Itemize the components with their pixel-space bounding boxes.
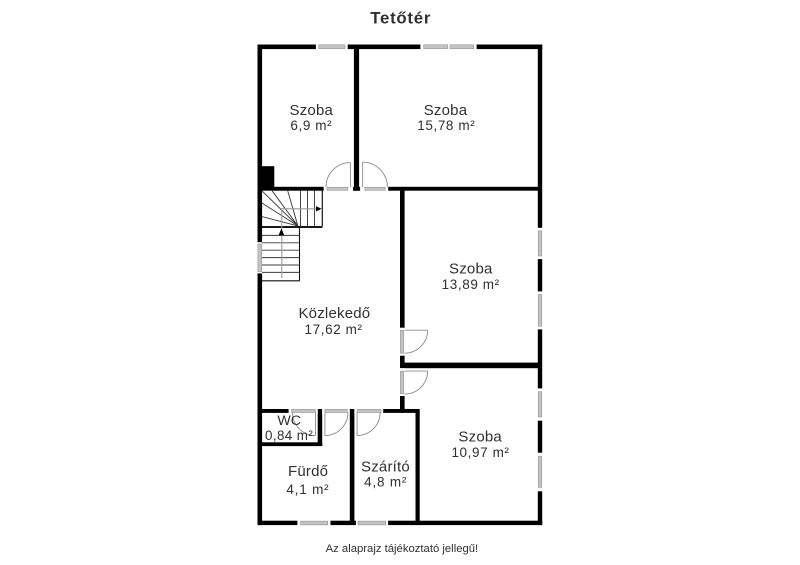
svg-text:Szoba: Szoba <box>290 102 334 119</box>
svg-text:6,9 m²: 6,9 m² <box>290 118 332 133</box>
svg-text:Szoba: Szoba <box>449 261 493 278</box>
svg-text:17,62 m²: 17,62 m² <box>305 322 363 337</box>
svg-text:10,97 m²: 10,97 m² <box>451 445 509 460</box>
svg-text:Tetőtér: Tetőtér <box>370 9 431 28</box>
svg-text:Közlekedő: Közlekedő <box>298 305 370 322</box>
svg-text:Fürdő: Fürdő <box>288 463 328 480</box>
svg-text:Szárító: Szárító <box>361 458 410 475</box>
svg-text:4,1 m²: 4,1 m² <box>286 482 329 497</box>
svg-text:4,8 m²: 4,8 m² <box>364 475 407 490</box>
svg-text:WC: WC <box>277 413 301 429</box>
svg-text:13,89 m²: 13,89 m² <box>442 277 500 292</box>
svg-text:15,78 m²: 15,78 m² <box>417 118 475 133</box>
svg-text:Szoba: Szoba <box>424 102 468 119</box>
svg-text:0,84 m²: 0,84 m² <box>265 428 313 443</box>
svg-text:Szoba: Szoba <box>458 429 502 446</box>
svg-text:Az alaprajz tájékoztató jelleg: Az alaprajz tájékoztató jellegű! <box>326 543 479 555</box>
